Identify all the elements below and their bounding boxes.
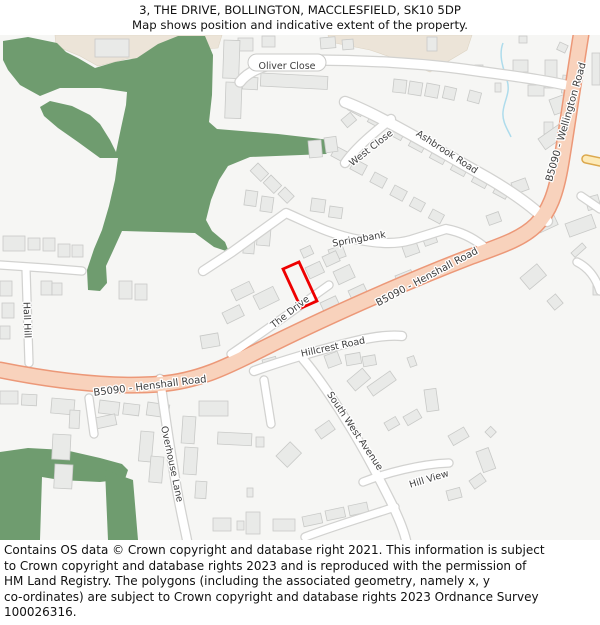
building (119, 281, 132, 299)
building (244, 190, 258, 207)
building (425, 83, 440, 98)
page-subtitle: Map shows position and indicative extent… (0, 18, 600, 33)
building (54, 464, 73, 489)
building (43, 238, 55, 251)
building (328, 206, 342, 219)
footer-line: 100026316. (4, 605, 596, 621)
building (72, 245, 83, 257)
building (69, 410, 80, 428)
road-label-hall-hill: Hall Hill (20, 302, 32, 339)
building (237, 521, 244, 530)
building (262, 36, 275, 47)
building (424, 388, 439, 411)
building (181, 416, 196, 444)
building (592, 53, 600, 85)
building (408, 81, 423, 96)
building (308, 140, 322, 158)
building (513, 60, 528, 72)
building (58, 244, 70, 257)
page-title: 3, THE DRIVE, BOLLINGTON, MACCLESFIELD, … (0, 0, 600, 18)
building (362, 355, 377, 367)
building (0, 326, 10, 339)
building (21, 394, 37, 406)
footer-line: Contains OS data © Crown copyright and d… (4, 543, 596, 559)
building (246, 512, 260, 534)
building (199, 401, 228, 416)
building (3, 236, 25, 251)
building (135, 284, 147, 300)
building (247, 488, 253, 497)
building (52, 434, 71, 460)
building (123, 403, 140, 416)
building (200, 333, 220, 349)
building (528, 85, 544, 96)
building (495, 83, 501, 92)
building (260, 196, 274, 213)
building (427, 37, 437, 51)
building (273, 519, 295, 531)
building (217, 432, 252, 446)
building (345, 352, 362, 365)
map-container: Oliver Close West Close Ashbrook Road Sp… (0, 35, 600, 540)
building (2, 303, 14, 318)
road-yellow (586, 159, 600, 162)
building (95, 39, 129, 57)
building (52, 283, 62, 295)
building (442, 86, 456, 100)
building (393, 79, 407, 93)
footer-line: HM Land Registry. The polygons (includin… (4, 574, 596, 590)
road-label-oliver-close: Oliver Close (258, 61, 315, 72)
building (256, 437, 264, 447)
building (223, 40, 240, 79)
footer-line: co-ordinates) are subject to Crown copyr… (4, 590, 596, 606)
building (195, 481, 207, 499)
building (0, 281, 12, 296)
building (149, 456, 164, 483)
building (98, 400, 119, 415)
copyright-footer: Contains OS data © Crown copyright and d… (0, 540, 600, 621)
building (320, 37, 336, 49)
map-header: 3, THE DRIVE, BOLLINGTON, MACCLESFIELD, … (0, 0, 600, 35)
map-canvas: Oliver Close West Close Ashbrook Road Sp… (0, 35, 600, 540)
road-side-south (89, 398, 94, 434)
building (0, 391, 18, 404)
building (342, 39, 354, 50)
building (28, 238, 40, 250)
building (213, 518, 231, 531)
building (41, 281, 52, 295)
building (324, 136, 338, 153)
building (310, 198, 326, 213)
footer-line: to Crown copyright and database rights 2… (4, 559, 596, 575)
building (519, 36, 527, 43)
building (183, 447, 198, 475)
